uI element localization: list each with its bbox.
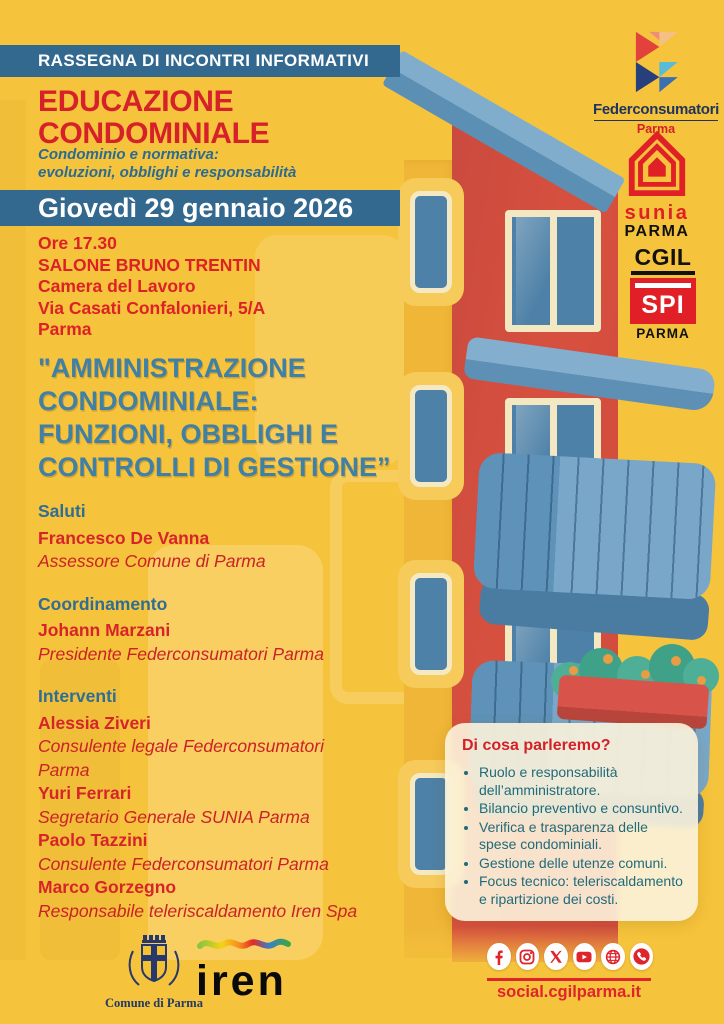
balcony-front xyxy=(473,452,717,600)
bay-window xyxy=(398,178,464,306)
event-poster: RASSEGNA DI INCONTRI INFORMATIVI EDUCAZI… xyxy=(0,0,724,1024)
poster-subtitle: Condominio e normativa: evoluzioni, obbl… xyxy=(38,146,296,182)
sunia-house-icon xyxy=(625,131,689,197)
window-mullion xyxy=(550,217,557,325)
poster-title-line1: EDUCAZIONE xyxy=(38,86,269,118)
speaker-role: Assessore Comune di Parma xyxy=(38,550,398,574)
sunia-wordmark: sunia xyxy=(618,203,696,223)
venue-address: Via Casati Confalonieri, 5/A xyxy=(38,298,265,320)
iren-wave-icon xyxy=(196,934,292,954)
poster-subtitle-line2: evoluzioni, obblighi e responsabilità xyxy=(38,164,296,182)
speaker-role: Consulente Federconsumatori Parma xyxy=(38,853,398,877)
program-section-saluti: Saluti Francesco De Vanna Assessore Comu… xyxy=(38,500,398,574)
speaker-role: Presidente Federconsumatori Parma xyxy=(38,643,398,667)
facade-window xyxy=(505,210,601,332)
topics-card: Di cosa parleremo? Ruolo e responsabilit… xyxy=(445,723,698,921)
window-glass xyxy=(410,573,452,675)
bay-window xyxy=(398,372,464,500)
window-sheen xyxy=(516,217,554,325)
venue-city: Parma xyxy=(38,319,265,341)
whatsapp-icon[interactable] xyxy=(630,943,654,970)
comune-di-parma-logo: Comune di Parma xyxy=(100,933,208,1011)
speaker-role: Segretario Generale SUNIA Parma xyxy=(38,806,398,830)
window-glass xyxy=(410,191,452,293)
speaker-name: Marco Gorzegno xyxy=(38,876,398,900)
sunia-logo: sunia PARMA xyxy=(618,131,696,241)
background-ghost-shape xyxy=(0,100,26,960)
main-title-line1: "AMMINISTRAZIONE xyxy=(38,352,391,385)
balcony xyxy=(471,452,717,642)
iren-logo: iren xyxy=(196,934,306,1003)
plant-flower xyxy=(641,670,650,679)
social-bar xyxy=(487,943,653,970)
poster-subtitle-line1: Condominio e normativa: xyxy=(38,146,296,164)
speaker-name: Yuri Ferrari xyxy=(38,782,398,806)
topic-item: Gestione delle utenze comuni. xyxy=(479,855,686,873)
globe-icon[interactable] xyxy=(601,943,625,970)
event-main-title: "AMMINISTRAZIONE CONDOMINIALE: FUNZIONI,… xyxy=(38,352,391,484)
spi-wordmark: SPI xyxy=(630,291,696,320)
spi-box: SPI xyxy=(630,278,696,324)
speaker-name: Alessia Ziveri xyxy=(38,712,398,736)
main-title-line3: FUNZIONI, OBBLIGHI E xyxy=(38,418,391,451)
spi-stripe xyxy=(635,283,691,288)
program: Saluti Francesco De Vanna Assessore Comu… xyxy=(38,500,398,942)
comune-di-parma-crest-icon xyxy=(119,933,189,989)
main-title-line2: CONDOMINIALE: xyxy=(38,385,391,418)
iren-wordmark: iren xyxy=(196,959,306,1003)
cgil-rule xyxy=(631,271,695,275)
window-glass xyxy=(410,385,452,487)
section-label: Saluti xyxy=(38,500,398,524)
cgil-city: PARMA xyxy=(630,326,696,341)
plant-flower xyxy=(603,654,613,664)
speaker-name: Paolo Tazzini xyxy=(38,829,398,853)
kicker-banner: RASSEGNA DI INCONTRI INFORMATIVI xyxy=(0,45,400,77)
topics-list: Ruolo e responsabilità dell’amministrato… xyxy=(462,764,686,908)
comune-di-parma-caption: Comune di Parma xyxy=(100,996,208,1011)
section-label: Coordinamento xyxy=(38,593,398,617)
social-divider xyxy=(487,978,651,981)
facebook-icon[interactable] xyxy=(487,943,511,970)
topic-item: Focus tecnico: teleriscaldamento e ripar… xyxy=(479,873,686,908)
topic-item: Bilancio preventivo e consuntivo. xyxy=(479,800,686,818)
cgil-wordmark: CGIL xyxy=(630,246,696,269)
plant-flower xyxy=(569,666,578,675)
program-section-interventi: Interventi Alessia Ziveri Consulente leg… xyxy=(38,685,398,923)
venue-building: Camera del Lavoro xyxy=(38,276,265,298)
federconsumatori-rule xyxy=(594,120,718,121)
venue-hall: SALONE BRUNO TRENTIN xyxy=(38,255,265,277)
youtube-icon[interactable] xyxy=(573,943,597,970)
main-title-line4: CONTROLLI DI GESTIONE” xyxy=(38,451,391,484)
federconsumatori-logo: Federconsumatori Parma xyxy=(588,31,724,136)
speaker-role: Responsabile teleriscaldamento Iren Spa xyxy=(38,900,398,924)
speaker-name: Johann Marzani xyxy=(38,619,398,643)
event-time: Ore 17.30 xyxy=(38,233,265,255)
plant-flower xyxy=(671,656,681,666)
date-banner: Giovedì 29 gennaio 2026 xyxy=(0,190,400,226)
section-label: Interventi xyxy=(38,685,398,709)
venue-block: Ore 17.30 SALONE BRUNO TRENTIN Camera de… xyxy=(38,233,265,341)
federconsumatori-pinwheel-icon xyxy=(632,31,680,93)
topics-card-title: Di cosa parleremo? xyxy=(462,737,686,755)
program-section-coordinamento: Coordinamento Johann Marzani Presidente … xyxy=(38,593,398,667)
sunia-city: PARMA xyxy=(618,223,696,241)
topic-item: Verifica e trasparenza delle spese condo… xyxy=(479,819,686,854)
x-twitter-icon[interactable] xyxy=(544,943,568,970)
website-link[interactable]: social.cgilparma.it xyxy=(479,983,659,1002)
instagram-icon[interactable] xyxy=(516,943,540,970)
speaker-name: Francesco De Vanna xyxy=(38,527,398,551)
federconsumatori-wordmark: Federconsumatori xyxy=(588,101,724,118)
topic-item: Ruolo e responsabilità dell’amministrato… xyxy=(479,764,686,799)
speaker-role: Consulente legale Federconsumatori Parma xyxy=(38,735,398,782)
cgil-spi-logo: CGIL SPI PARMA xyxy=(630,246,696,341)
poster-title: EDUCAZIONE CONDOMINIALE xyxy=(38,86,269,150)
bay-window xyxy=(398,560,464,688)
